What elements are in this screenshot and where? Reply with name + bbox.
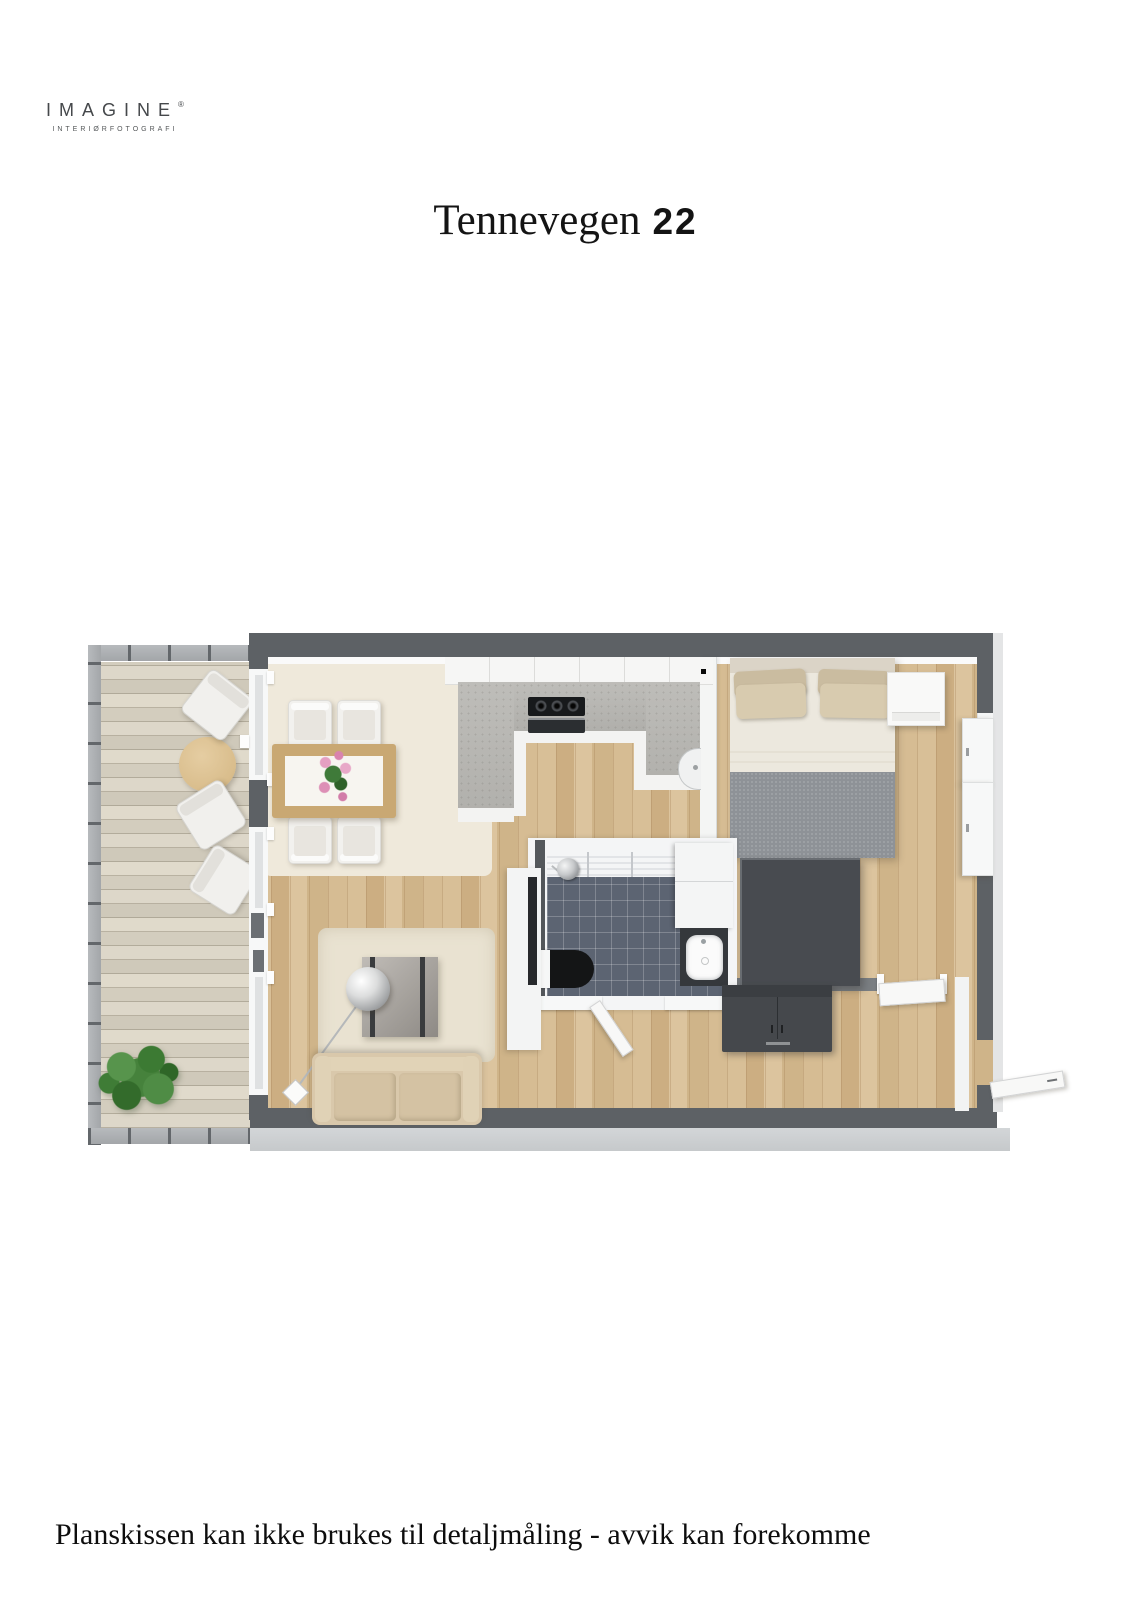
page-title: Tennevegen22	[0, 196, 1131, 245]
cabinet-drawer-handle	[766, 1042, 790, 1045]
imagine-logo: IMAGINE® INTERIØRFOTOGRAFI	[46, 100, 184, 133]
title-number: 22	[652, 201, 697, 242]
bed-blanket	[730, 772, 895, 858]
wall-south-outer-face	[250, 1128, 1010, 1151]
kitchen-counter-west	[458, 682, 514, 822]
balcony-door-glass	[255, 675, 263, 775]
wall-west-pier-top	[249, 633, 268, 669]
balcony-plant	[95, 1038, 183, 1120]
tv	[528, 877, 537, 985]
kitchen-cabinet-end	[458, 808, 514, 822]
dining-chair	[337, 816, 381, 864]
kitchen-upper-cabinets	[445, 657, 713, 685]
toilet	[550, 950, 594, 988]
coffee-table-strap	[420, 957, 425, 1037]
cabinet-handle	[771, 1025, 773, 1033]
sofa-armrest	[315, 1056, 331, 1122]
registered-mark: ®	[178, 100, 184, 109]
window-sill	[267, 903, 274, 916]
wall-east-middle	[977, 868, 993, 1040]
hallway-wall-face	[955, 977, 969, 1111]
hallway-cabinet	[722, 985, 832, 1052]
shower-glass-divider	[631, 852, 633, 877]
bedroom-dresser	[740, 858, 860, 986]
nightstand	[887, 672, 945, 726]
wall-switch	[701, 669, 706, 674]
floor-plan-page: IMAGINE® INTERIØRFOTOGRAFI Tennevegen22	[0, 0, 1131, 1600]
wall-west-pier-middle	[249, 780, 268, 827]
flower-bouquet	[311, 748, 359, 806]
bed-pillow	[820, 683, 891, 718]
toilet-tank	[540, 950, 550, 988]
bedroom-wardrobe	[962, 782, 994, 876]
window-sill	[267, 671, 274, 684]
wall-north	[252, 633, 990, 657]
balcony-railing-top	[88, 645, 255, 661]
sofa	[312, 1053, 482, 1125]
wall-east-upper	[977, 633, 993, 713]
bedroom-wardrobe	[962, 718, 994, 784]
floor-lamp-shade	[346, 967, 390, 1011]
disclaimer-text: Planskissen kan ikke brukes til detaljmå…	[55, 1518, 871, 1552]
window-sill	[267, 827, 274, 840]
west-window-glass	[255, 832, 263, 908]
logo-tagline: INTERIØRFOTOGRAFI	[46, 126, 184, 133]
double-bed	[730, 658, 895, 858]
floor-plan	[85, 615, 1095, 1185]
balcony-railing-bottom	[88, 1128, 255, 1144]
kitchen-cabinet-front	[514, 731, 526, 816]
window-sill	[267, 971, 274, 984]
wall-east-outer-face	[993, 633, 1003, 1112]
cooktop	[528, 697, 585, 716]
wall-west-pier-bottom	[249, 1095, 268, 1120]
west-window-glass	[255, 977, 263, 1089]
logo-brand-text: IMAGINE®	[46, 100, 184, 121]
cabinet-handle	[781, 1025, 783, 1033]
west-window-pane	[251, 913, 264, 938]
sofa-back	[317, 1057, 477, 1071]
dining-chair	[288, 700, 332, 748]
bedroom-door	[878, 979, 945, 1007]
dining-chair	[337, 700, 381, 748]
sofa-armrest	[463, 1056, 479, 1122]
bathroom-cabinet	[675, 843, 733, 928]
shower-head	[557, 858, 579, 880]
sofa-cushion	[399, 1073, 461, 1121]
dining-chair	[288, 816, 332, 864]
bathroom-sink	[686, 935, 723, 980]
shower-glass-divider	[587, 852, 589, 877]
dining-table	[272, 744, 396, 818]
title-street: Tennevegen	[433, 197, 640, 244]
window-sill	[240, 735, 249, 748]
cabinet-door-divider	[777, 997, 778, 1039]
bed-pillow	[735, 683, 806, 719]
kitchen-cabinet-front	[634, 731, 646, 790]
oven	[528, 718, 585, 733]
sofa-cushion	[334, 1073, 396, 1121]
west-window-pane	[253, 950, 264, 972]
